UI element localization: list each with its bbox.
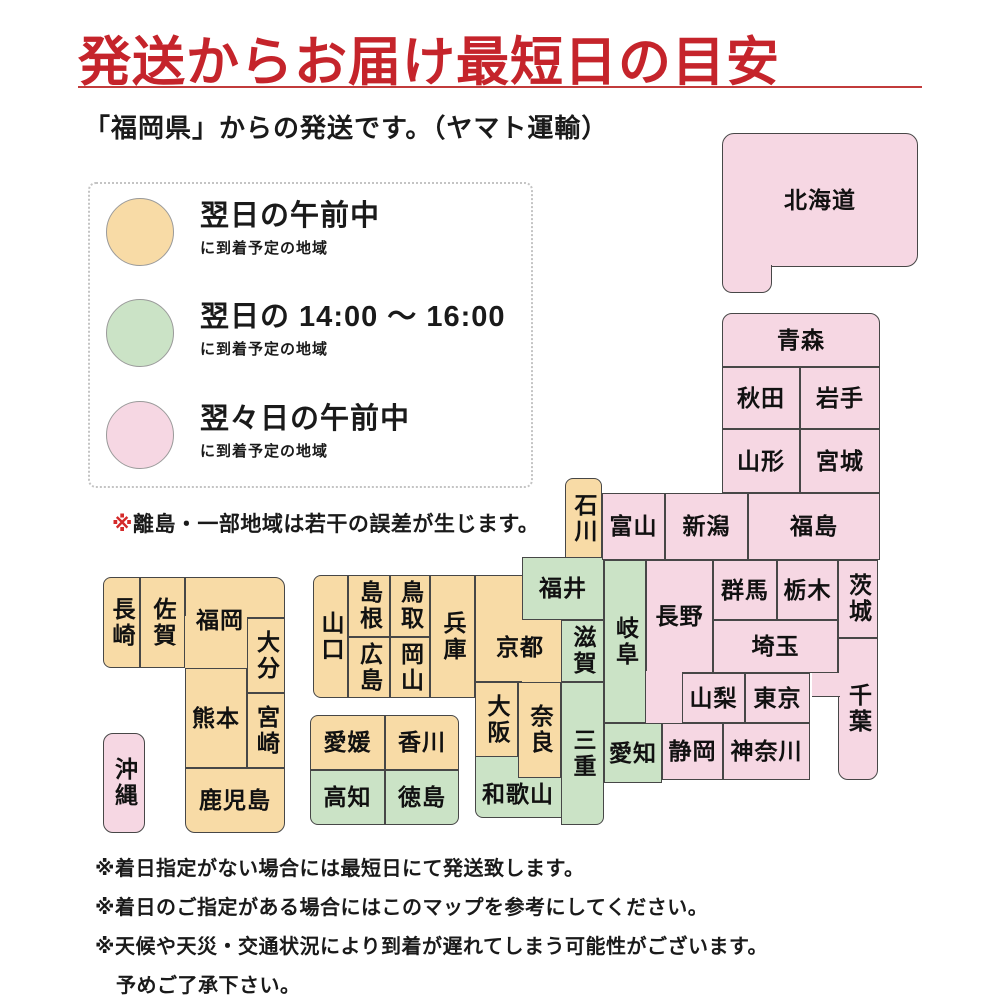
prefecture-saitama bbox=[713, 620, 838, 673]
prefecture-tokushima bbox=[385, 770, 459, 825]
prefecture-niigata-label: 新潟 bbox=[665, 493, 748, 560]
prefecture-gunma bbox=[713, 560, 777, 620]
prefecture-nagano-label: 長野 bbox=[646, 560, 713, 673]
prefecture-fukuoka bbox=[185, 577, 285, 618]
legend-item-texts: 翌日の午前中 に到着予定の地域 bbox=[200, 198, 380, 258]
prefecture-kochi-label: 高知 bbox=[310, 770, 385, 825]
prefecture-okinawa-label: 沖縄 bbox=[103, 733, 145, 833]
page-title: 発送からお届け最短日の目安 bbox=[78, 20, 780, 96]
prefecture-wakayama bbox=[475, 757, 518, 818]
prefecture-hokkaido-label: 北海道 bbox=[722, 133, 918, 267]
prefecture-kumamoto bbox=[185, 668, 247, 768]
prefecture-yamaguchi bbox=[313, 575, 348, 698]
prefecture-tokyo bbox=[745, 673, 810, 723]
prefecture-kanagawa-label: 神奈川 bbox=[723, 723, 810, 780]
prefecture-gifu bbox=[604, 560, 646, 723]
prefecture-kumamoto-label: 熊本 bbox=[185, 668, 247, 768]
prefecture-shiga bbox=[561, 620, 604, 682]
prefecture-kagoshima-label: 鹿児島 bbox=[185, 768, 285, 833]
legend-item-subtitle: に到着予定の地域 bbox=[200, 338, 506, 359]
prefecture-ishikawa-label: 石川 bbox=[565, 478, 602, 560]
prefecture-saga bbox=[140, 577, 185, 668]
legend-item-next-day-pm: 翌日の 14:00 ～ 16:00 に到着予定の地域 bbox=[106, 299, 506, 367]
prefecture-tottori bbox=[390, 575, 430, 637]
second-day-am-circle-icon bbox=[106, 401, 174, 469]
prefecture-wakayama-label: 和歌山 bbox=[475, 770, 561, 818]
prefecture-yamanashi-label: 山梨 bbox=[682, 673, 745, 723]
prefecture-oita bbox=[247, 618, 285, 693]
prefecture-gunma-label: 群馬 bbox=[713, 560, 777, 620]
prefecture-kagoshima bbox=[185, 768, 285, 833]
prefecture-shimane bbox=[348, 575, 390, 637]
prefecture-fukui-label: 福井 bbox=[522, 557, 604, 620]
prefecture-kagawa-label: 香川 bbox=[385, 715, 459, 770]
prefecture-hokkaido bbox=[722, 133, 918, 267]
prefecture-gifu-label: 岐阜 bbox=[604, 560, 646, 723]
footnote-line: ※着日のご指定がある場合にはこのマップを参考にしてください。 bbox=[95, 891, 768, 930]
legend-item-second-day-am: 翌々日の午前中 に到着予定の地域 bbox=[106, 401, 410, 469]
prefecture-tottori-label: 鳥取 bbox=[390, 575, 430, 637]
prefecture-ehime-label: 愛媛 bbox=[310, 715, 385, 770]
prefecture-okinawa bbox=[103, 733, 145, 833]
next-day-am-circle-icon bbox=[106, 198, 174, 266]
prefecture-hokkaido-part2 bbox=[722, 265, 772, 293]
prefecture-aichi bbox=[604, 723, 662, 783]
prefecture-shizuoka bbox=[662, 723, 723, 780]
prefecture-ibaraki bbox=[838, 560, 878, 638]
prefecture-shiga-label: 滋賀 bbox=[561, 620, 604, 682]
legend-item-next-day-am: 翌日の午前中 に到着予定の地域 bbox=[106, 198, 380, 266]
prefecture-nara-label: 奈良 bbox=[518, 682, 561, 778]
prefecture-akita bbox=[722, 367, 800, 429]
prefecture-ishikawa bbox=[565, 478, 602, 560]
prefecture-yamanashi bbox=[682, 673, 745, 723]
prefecture-niigata bbox=[665, 493, 748, 560]
prefecture-tokushima-label: 徳島 bbox=[385, 770, 459, 825]
prefecture-kyoto bbox=[475, 575, 522, 682]
prefecture-hyogo bbox=[430, 575, 475, 698]
legend-item-texts: 翌日の 14:00 ～ 16:00 に到着予定の地域 bbox=[200, 299, 506, 359]
title-underline bbox=[78, 86, 922, 88]
prefecture-wakayama-part2 bbox=[518, 778, 561, 818]
prefecture-miyazaki bbox=[247, 693, 285, 768]
next-day-pm-circle-icon bbox=[106, 299, 174, 367]
prefecture-kochi bbox=[310, 770, 385, 825]
prefecture-hiroshima bbox=[348, 637, 390, 698]
prefecture-hyogo-label: 兵庫 bbox=[430, 575, 475, 698]
prefecture-fukui bbox=[522, 557, 604, 620]
legend-item-subtitle: に到着予定の地域 bbox=[200, 440, 410, 461]
prefecture-osaka bbox=[475, 682, 518, 757]
prefecture-akita-label: 秋田 bbox=[722, 367, 800, 429]
footnotes: ※着日指定がない場合には最短日にて発送致します。 ※着日のご指定がある場合にはこ… bbox=[95, 852, 768, 1008]
prefecture-nagano-part2 bbox=[646, 671, 682, 723]
prefecture-fukushima bbox=[748, 493, 880, 560]
prefecture-ehime bbox=[310, 715, 385, 770]
prefecture-yamagata-label: 山形 bbox=[722, 429, 800, 493]
prefecture-aomori bbox=[722, 313, 880, 367]
prefecture-aomori-label: 青森 bbox=[722, 313, 880, 367]
prefecture-nagasaki-label: 長崎 bbox=[103, 577, 140, 668]
prefecture-saitama-label: 埼玉 bbox=[713, 620, 838, 673]
islands-disclaimer: ※離島・一部地域は若干の誤差が生じます。 bbox=[112, 508, 539, 538]
footnote-line: ※天候や天災・交通状況により到着が遅れてしまう可能性がございます。 bbox=[95, 930, 768, 969]
prefecture-okayama bbox=[390, 637, 430, 698]
prefecture-shizuoka-label: 静岡 bbox=[662, 723, 723, 780]
prefecture-osaka-label: 大阪 bbox=[475, 682, 518, 757]
prefecture-tochigi-label: 栃木 bbox=[777, 560, 838, 620]
prefecture-chiba-part2 bbox=[812, 673, 840, 697]
prefecture-iwate bbox=[800, 367, 880, 429]
islands-disclaimer-text: 離島・一部地域は若干の誤差が生じます。 bbox=[133, 513, 539, 536]
prefecture-kyoto-label: 京都 bbox=[480, 625, 560, 670]
prefecture-fukushima-label: 福島 bbox=[748, 493, 880, 560]
prefecture-mie bbox=[561, 682, 604, 825]
page-root: { "theme": { "title_red": "#c5242b", "ru… bbox=[0, 0, 1000, 1000]
prefecture-tochigi bbox=[777, 560, 838, 620]
prefecture-yamaguchi-label: 山口 bbox=[313, 575, 348, 698]
prefecture-miyagi bbox=[800, 429, 880, 493]
prefecture-iwate-label: 岩手 bbox=[800, 367, 880, 429]
prefecture-tokyo-label: 東京 bbox=[745, 673, 810, 723]
legend-item-subtitle: に到着予定の地域 bbox=[200, 237, 380, 258]
prefecture-nagano bbox=[646, 560, 713, 673]
legend-item-title: 翌日の 14:00 ～ 16:00 bbox=[200, 301, 506, 334]
prefecture-oita-label: 大分 bbox=[247, 618, 285, 693]
footnote-line: 予めご了承下さい。 bbox=[95, 969, 768, 1008]
asterisk-marker: ※ bbox=[112, 513, 133, 536]
prefecture-okayama-label: 岡山 bbox=[390, 637, 430, 698]
prefecture-nara bbox=[518, 682, 561, 778]
origin-subtitle: 「福岡県」からの発送です。（ヤマト運輸） bbox=[84, 108, 608, 145]
prefecture-toyama bbox=[602, 493, 665, 560]
prefecture-kanagawa bbox=[723, 723, 810, 780]
prefecture-kyoto-part2 bbox=[522, 620, 561, 682]
prefecture-aichi-label: 愛知 bbox=[604, 723, 662, 783]
legend-box: 翌日の午前中 に到着予定の地域 翌日の 14:00 ～ 16:00 に到着予定の… bbox=[88, 182, 533, 488]
prefecture-hiroshima-label: 広島 bbox=[348, 637, 390, 698]
prefecture-mie-label: 三重 bbox=[561, 682, 604, 825]
legend-item-title: 翌日の午前中 bbox=[200, 200, 380, 233]
prefecture-kagawa bbox=[385, 715, 459, 770]
legend-item-texts: 翌々日の午前中 に到着予定の地域 bbox=[200, 401, 410, 461]
prefecture-miyazaki-label: 宮崎 bbox=[247, 693, 285, 768]
prefecture-saga-label: 佐賀 bbox=[140, 577, 185, 668]
legend-item-title: 翌々日の午前中 bbox=[200, 403, 410, 436]
prefecture-chiba bbox=[838, 638, 878, 780]
prefecture-toyama-label: 富山 bbox=[602, 493, 665, 560]
prefecture-ibaraki-label: 茨城 bbox=[838, 560, 878, 638]
prefecture-fukuoka-label: 福岡 bbox=[185, 590, 255, 650]
prefecture-shimane-label: 島根 bbox=[348, 575, 390, 637]
prefecture-nagasaki bbox=[103, 577, 140, 668]
footnote-line: ※着日指定がない場合には最短日にて発送致します。 bbox=[95, 852, 768, 891]
japan-map: 長崎佐賀福岡大分熊本宮崎鹿児島山口島根鳥取広島岡山兵庫京都大阪奈良愛媛香川石川高… bbox=[0, 0, 1000, 1000]
prefecture-chiba-label: 千葉 bbox=[838, 638, 878, 780]
prefecture-miyagi-label: 宮城 bbox=[800, 429, 880, 493]
prefecture-fukuoka-part2 bbox=[185, 616, 247, 668]
prefecture-yamagata bbox=[722, 429, 800, 493]
